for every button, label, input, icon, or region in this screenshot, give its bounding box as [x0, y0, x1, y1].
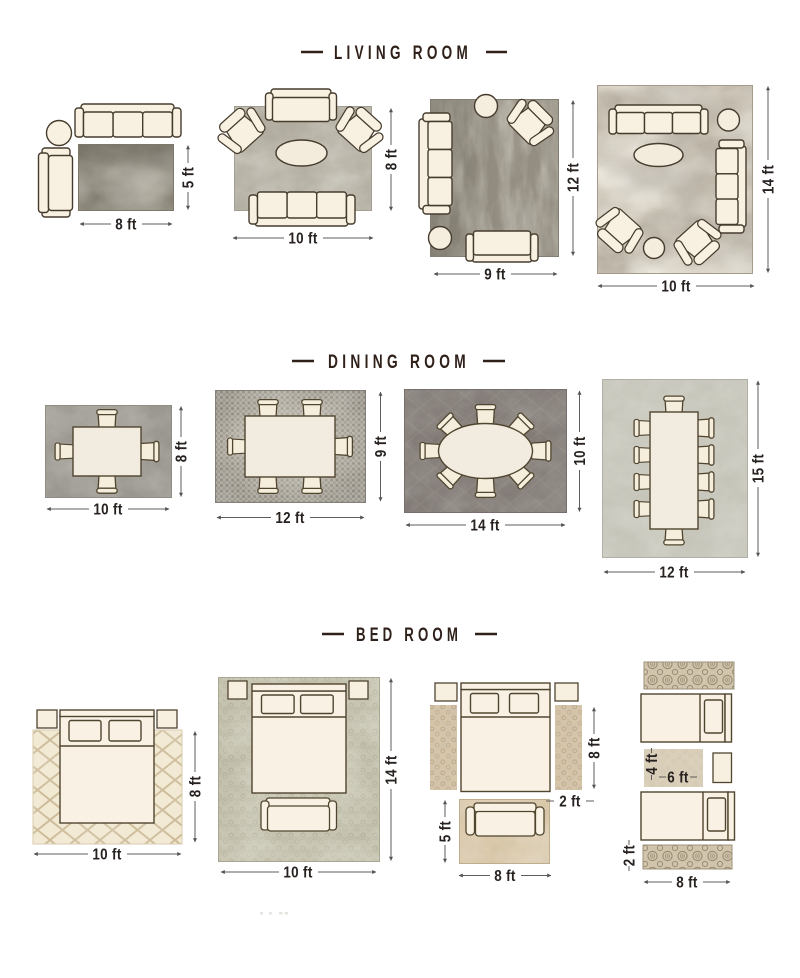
svg-text:10 ft: 10 ft: [661, 279, 690, 296]
svg-text:8 ft: 8 ft: [174, 441, 191, 463]
svg-text:12 ft: 12 ft: [566, 163, 583, 192]
svg-text:6 ft: 6 ft: [667, 770, 689, 787]
svg-text:10 ft: 10 ft: [283, 865, 312, 882]
svg-text:12 ft: 12 ft: [659, 565, 688, 582]
svg-text:9 ft: 9 ft: [373, 436, 390, 458]
svg-text:10 ft: 10 ft: [572, 436, 589, 465]
svg-text:9 ft: 9 ft: [484, 267, 506, 284]
svg-text:8 ft: 8 ft: [587, 737, 604, 759]
svg-text:BED ROOM: BED ROOM: [356, 625, 462, 646]
svg-text:8 ft: 8 ft: [676, 875, 698, 892]
svg-text:5 ft: 5 ft: [438, 821, 455, 843]
svg-text:10 ft: 10 ft: [92, 847, 121, 864]
svg-text:15 ft: 15 ft: [751, 454, 768, 483]
svg-text:12 ft: 12 ft: [275, 510, 304, 527]
svg-text:2 ft: 2 ft: [622, 845, 639, 867]
svg-text:14 ft: 14 ft: [384, 755, 401, 784]
svg-text:10 ft: 10 ft: [93, 502, 122, 519]
svg-text:14 ft: 14 ft: [761, 165, 778, 194]
svg-text:2 ft: 2 ft: [559, 794, 581, 811]
svg-text:5 ft: 5 ft: [181, 167, 198, 189]
svg-text:4 ft: 4 ft: [644, 753, 661, 775]
svg-text:8 ft: 8 ft: [115, 217, 137, 234]
svg-text:10 ft: 10 ft: [288, 231, 317, 248]
svg-text:8 ft: 8 ft: [494, 868, 516, 885]
svg-text:DINING ROOM: DINING ROOM: [328, 352, 470, 373]
svg-text:LIVING ROOM: LIVING ROOM: [334, 43, 472, 64]
svg-text:8 ft: 8 ft: [188, 776, 205, 798]
svg-text:8 ft: 8 ft: [384, 149, 401, 171]
svg-text:14 ft: 14 ft: [470, 518, 499, 535]
